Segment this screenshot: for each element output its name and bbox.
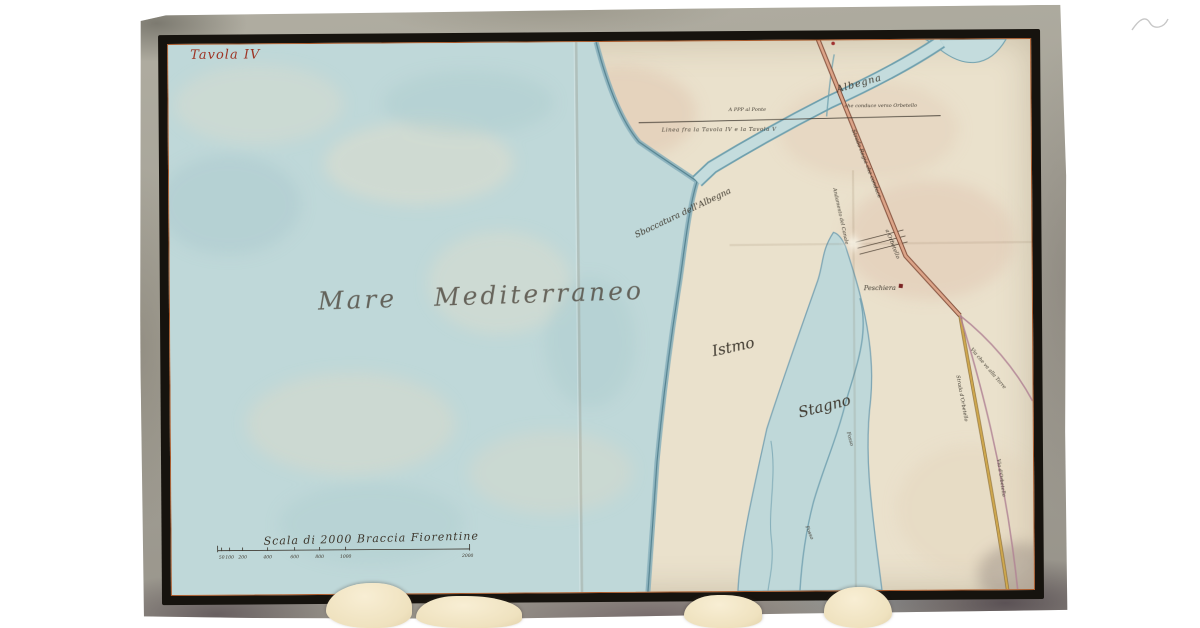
background: Tavola IV Mare Mediterraneo Istmo Stagno… [0, 0, 1200, 628]
plate-title: Tavola IV [190, 47, 261, 62]
via-torre-label: Via che va alla Torre [969, 347, 1007, 391]
strada-orbetello-label: Strada d'Orbetello [954, 375, 968, 422]
map-sheet: Tavola IV Mare Mediterraneo Istmo Stagno… [167, 38, 1035, 596]
road-start-mark [831, 42, 835, 46]
scale-tick-800: 800 [315, 554, 324, 560]
map-artwork: Tavola IV Mare Mediterraneo Istmo Stagno… [168, 39, 1034, 595]
torn-paper-fragment [684, 595, 762, 628]
istmo-label: Istmo [709, 333, 756, 360]
peschiera-building [899, 284, 903, 288]
torn-paper-fragment [824, 587, 892, 628]
map-photo: Tavola IV Mare Mediterraneo Istmo Stagno… [138, 5, 1070, 621]
scale-tick-200: 200 [237, 554, 247, 560]
torn-paper-fragment [416, 596, 522, 628]
torre-road [960, 315, 1033, 402]
scale-tick-400: 400 [262, 554, 272, 560]
scale-tick-1000: 1000 [340, 554, 352, 560]
map-frame: Tavola IV Mare Mediterraneo Istmo Stagno… [158, 29, 1044, 605]
boundary-note-left: A PPP al Ponte [728, 107, 766, 113]
scale-tick-100: 100 [225, 555, 234, 561]
torn-paper-fragment [326, 583, 412, 628]
pen-mark [1130, 12, 1170, 38]
scale-tick-50: 50 [219, 555, 225, 561]
boundary-note-right: che conduce verso Orbetello [845, 103, 918, 110]
scale-tick-600: 600 [290, 554, 299, 560]
boundary-line-label: Linea fra la Tavola IV e la Tavola V [661, 127, 777, 134]
scale-tick-2000: 2000 [461, 553, 474, 559]
peschiera-label: Peschiera [863, 284, 896, 292]
